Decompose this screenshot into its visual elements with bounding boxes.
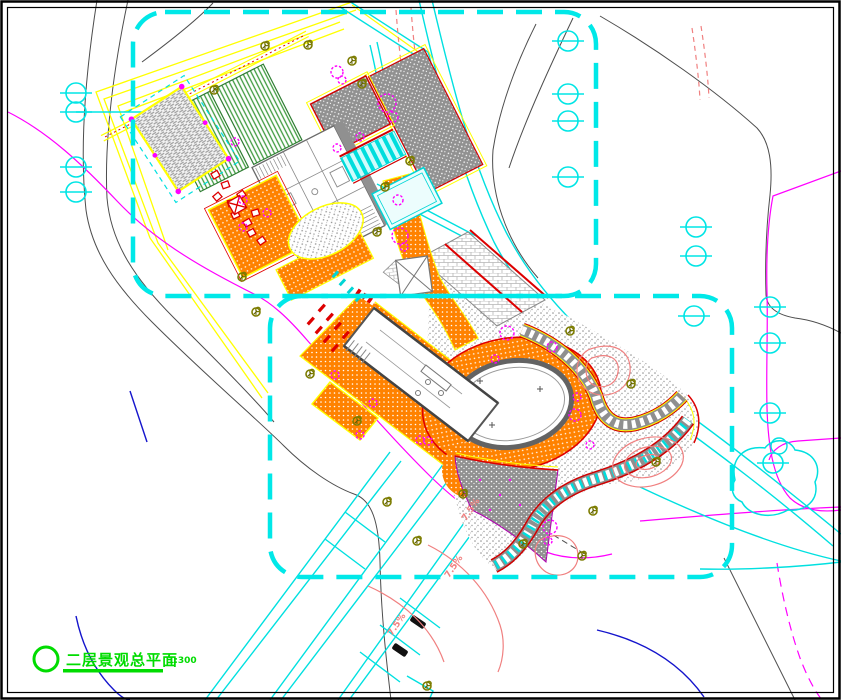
title-block: 二层景观总平面 1:300	[34, 647, 197, 673]
tree-symbol	[252, 307, 260, 316]
stair-tower	[382, 256, 433, 298]
tree-symbol	[589, 506, 597, 515]
tree-symbol	[348, 56, 356, 65]
benchmark-symbol	[552, 111, 584, 131]
benchmark-symbol	[60, 102, 92, 122]
scale-label: 1:300	[168, 656, 197, 666]
tree-symbol	[306, 369, 314, 378]
title-circle-icon	[34, 647, 58, 671]
cad-drawing-sheet: 7.5%7.5%7.5% 二层景观总平面 1:300	[0, 0, 841, 700]
plan-title: 二层景观总平面	[66, 651, 178, 669]
benchmark-symbol	[552, 31, 584, 51]
benchmark-symbol	[754, 333, 786, 353]
tree-symbol	[406, 156, 414, 165]
tree-symbol	[210, 85, 218, 94]
site-plan-canvas: 7.5%7.5%7.5% 二层景观总平面 1:300	[0, 0, 841, 700]
tree-symbol	[383, 497, 391, 506]
tree-symbol	[413, 536, 421, 545]
benchmark-symbol	[60, 182, 92, 202]
benchmark-symbol	[680, 246, 712, 266]
title-underline	[63, 669, 163, 673]
tree-symbol	[304, 40, 312, 49]
benchmark-symbol	[552, 167, 584, 187]
benchmark-symbol	[754, 403, 786, 423]
slope-labels-layer: 7.5%7.5%7.5%	[386, 497, 482, 638]
tree-symbol	[261, 41, 269, 50]
benchmark-symbol	[678, 306, 710, 326]
benchmark-symbol	[552, 84, 584, 104]
benchmark-symbol	[680, 217, 712, 237]
benchmark-symbol	[60, 83, 92, 103]
tree-symbol	[578, 551, 586, 560]
